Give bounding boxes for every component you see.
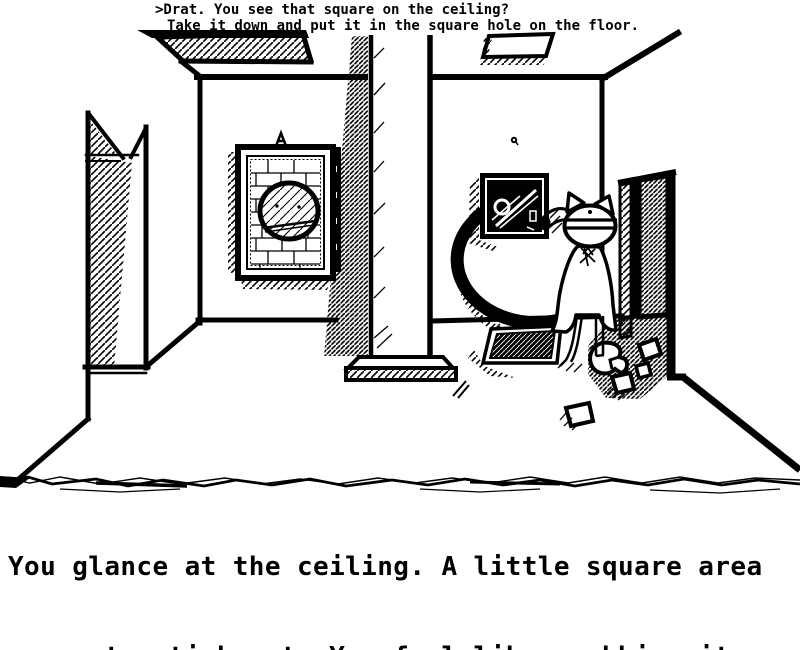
paper-scrap	[636, 363, 651, 378]
torn-paper-edge	[0, 476, 800, 493]
ceiling-square[interactable]	[479, 34, 553, 65]
floor-corner-right	[667, 377, 800, 470]
right-ceiling-corner	[602, 33, 678, 79]
narration-text: You glance at the ceiling. A little squa…	[8, 492, 779, 650]
smiley-ball	[260, 183, 318, 239]
game-screen: >Drat. You see that square on the ceilin…	[0, 0, 800, 650]
paper-scrap	[639, 339, 661, 360]
open-door[interactable]	[588, 171, 800, 470]
paper-scrap	[612, 373, 634, 393]
eye	[588, 210, 592, 214]
narration-line: You glance at the ceiling. A little squa…	[8, 552, 779, 582]
ceiling-light-panel	[137, 30, 311, 77]
command-text-line-1: >Drat. You see that square on the ceilin…	[155, 2, 509, 18]
dark-framed-picture[interactable]	[468, 173, 549, 252]
floor-scratch	[453, 381, 469, 398]
floor-hole[interactable]	[453, 326, 561, 398]
narration-line: seems to stick out. You feel like grabbi…	[8, 642, 779, 650]
brick-ball-picture[interactable]	[228, 133, 333, 290]
wall-mark	[512, 138, 518, 145]
hand	[540, 216, 551, 231]
command-text-line-2: Take it down and put it in the square ho…	[167, 18, 639, 34]
left-wall-partition	[14, 113, 200, 483]
